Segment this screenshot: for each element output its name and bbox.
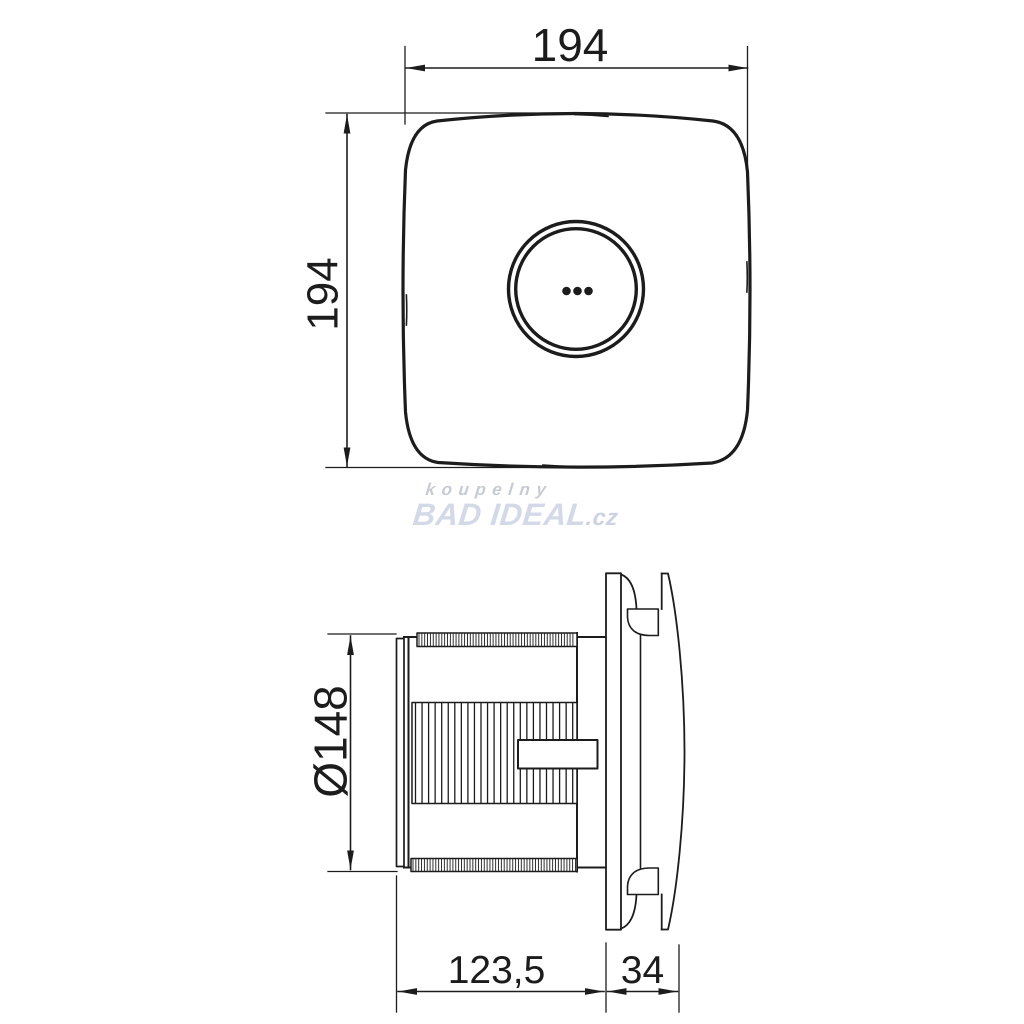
dot-left xyxy=(562,287,571,296)
rib-band-top-hatch xyxy=(419,633,573,647)
dim-label-body-depth: 123,5 xyxy=(448,949,546,992)
front-view xyxy=(403,114,750,468)
latch-block xyxy=(518,740,598,769)
dim-label-front-height: 194 xyxy=(299,257,348,330)
dim-label-front-width: 194 xyxy=(532,19,609,71)
indicator-dots xyxy=(562,287,593,296)
dim-label-front-depth: 34 xyxy=(621,949,664,992)
dim-label-duct-diameter: Ø148 xyxy=(305,685,357,798)
watermark: koupelny BAD IDEAL.cz xyxy=(411,480,622,532)
front-cover-profile xyxy=(662,574,685,930)
snap-clips xyxy=(628,609,659,895)
rear-end-plate xyxy=(397,639,405,867)
mounting-plate xyxy=(606,573,621,929)
clip-top xyxy=(628,609,659,636)
clip-bottom xyxy=(628,868,659,895)
watermark-brand: BAD IDEAL xyxy=(411,497,588,532)
dot-middle xyxy=(573,287,582,296)
dot-right xyxy=(584,287,593,296)
side-view xyxy=(397,573,685,929)
watermark-suffix: .cz xyxy=(585,504,620,530)
cover-outer-arc xyxy=(662,574,685,930)
watermark-brand-line: BAD IDEAL.cz xyxy=(411,500,620,532)
